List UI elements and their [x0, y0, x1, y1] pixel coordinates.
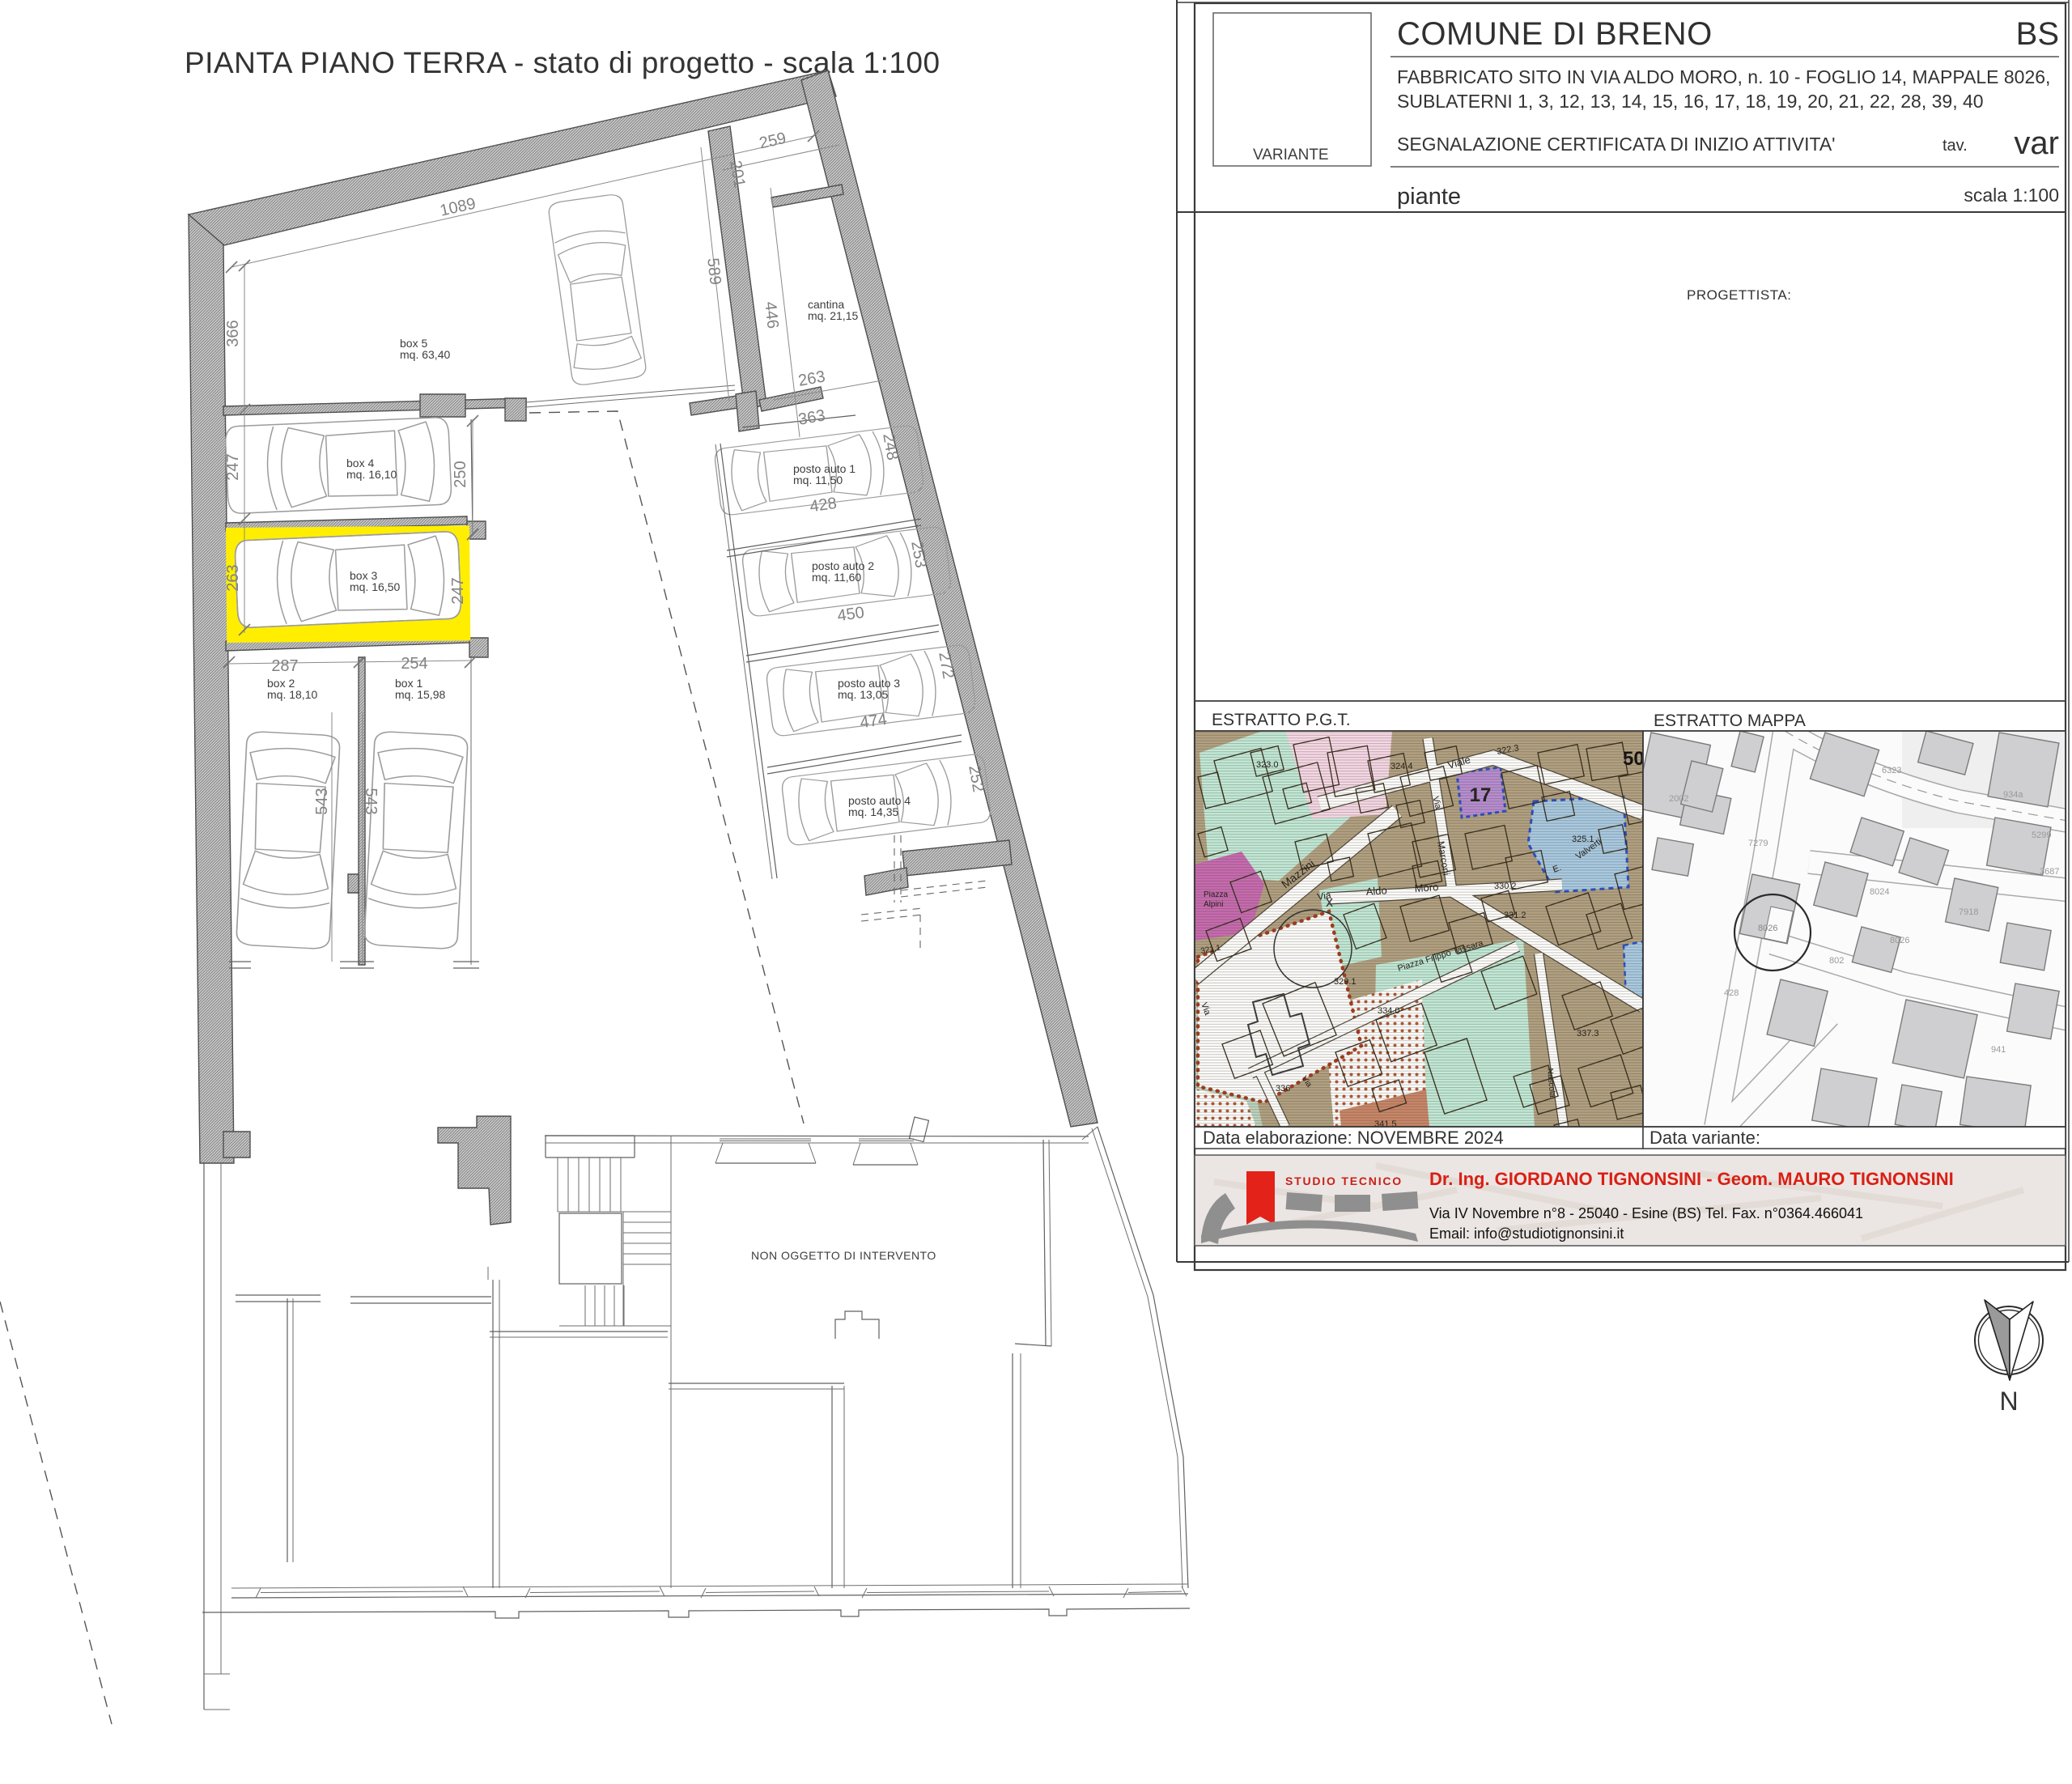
svg-text:mq. 11,50: mq. 11,50 — [793, 474, 843, 486]
svg-text:247: 247 — [449, 577, 467, 604]
svg-text:8026: 8026 — [1890, 936, 1909, 945]
svg-text:SUBLATERNI 1, 3, 12, 13, 14, 1: SUBLATERNI 1, 3, 12, 13, 14, 15, 16, 17,… — [1397, 91, 1984, 112]
svg-text:247: 247 — [224, 453, 242, 480]
svg-text:mq. 14,35: mq. 14,35 — [848, 805, 898, 818]
svg-text:589: 589 — [703, 257, 724, 286]
svg-text:802: 802 — [1829, 956, 1844, 966]
svg-text:Email: info@studiotignonsini.i: Email: info@studiotignonsini.it — [1429, 1225, 1624, 1242]
svg-text:366: 366 — [224, 320, 242, 346]
svg-text:474: 474 — [859, 711, 888, 732]
svg-text:2002: 2002 — [1669, 794, 1688, 804]
svg-text:COMUNE DI BRENO: COMUNE DI BRENO — [1397, 16, 1713, 52]
svg-text:Data elaborazione: NOVEMBRE 20: Data elaborazione: NOVEMBRE 2024 — [1203, 1128, 1504, 1148]
svg-text:428: 428 — [1724, 988, 1739, 998]
svg-text:7918: 7918 — [1959, 907, 1978, 917]
svg-text:450: 450 — [836, 604, 865, 625]
svg-text:ESTRATTO P.G.T.: ESTRATTO P.G.T. — [1212, 711, 1351, 729]
svg-text:scala 1:100: scala 1:100 — [1964, 185, 2059, 206]
svg-text:NON OGGETTO DI INTERVENTO: NON OGGETTO DI INTERVENTO — [751, 1249, 936, 1262]
svg-text:Data variante:: Data variante: — [1650, 1128, 1760, 1148]
svg-text:ESTRATTO MAPPA: ESTRATTO MAPPA — [1654, 711, 1806, 730]
svg-text:VARIANTE: VARIANTE — [1253, 147, 1329, 164]
svg-text:mq. 18,10: mq. 18,10 — [267, 688, 317, 701]
svg-text:PROGETTISTA:: PROGETTISTA: — [1687, 287, 1791, 303]
svg-text:SEGNALAZIONE CERTIFICATA DI IN: SEGNALAZIONE CERTIFICATA DI INIZIO ATTIV… — [1397, 134, 1836, 155]
svg-text:N: N — [1999, 1387, 2018, 1416]
svg-text:mq. 16,10: mq. 16,10 — [346, 468, 397, 481]
svg-text:263: 263 — [224, 564, 242, 591]
svg-text:mq. 63,40: mq. 63,40 — [400, 348, 450, 361]
svg-text:250: 250 — [452, 461, 469, 487]
svg-text:mq. 21,15: mq. 21,15 — [808, 309, 858, 322]
svg-text:543: 543 — [362, 788, 380, 814]
svg-text:var: var — [2014, 125, 2059, 161]
svg-text:piante: piante — [1397, 184, 1461, 210]
svg-text:mq. 11,60: mq. 11,60 — [812, 571, 861, 584]
svg-text:BS: BS — [2016, 16, 2059, 52]
svg-text:254: 254 — [401, 655, 427, 673]
svg-text:8024: 8024 — [1870, 887, 1889, 897]
svg-text:STUDIO TECNICO: STUDIO TECNICO — [1285, 1174, 1403, 1187]
svg-text:Via IV Novembre n°8 - 25040 -: Via IV Novembre n°8 - 25040 - Esine (BS)… — [1429, 1205, 1863, 1221]
svg-text:8026: 8026 — [1758, 924, 1777, 933]
svg-text:446: 446 — [761, 301, 781, 329]
svg-text:543: 543 — [313, 788, 331, 814]
svg-text:287: 287 — [271, 657, 298, 675]
svg-text:428: 428 — [809, 495, 838, 516]
svg-text:tav.: tav. — [1942, 137, 1968, 155]
svg-text:mq. 15,98: mq. 15,98 — [395, 688, 445, 701]
svg-text:5299: 5299 — [2032, 830, 2051, 840]
svg-text:mq. 13,05: mq. 13,05 — [838, 688, 888, 701]
svg-text:7279: 7279 — [1748, 839, 1768, 848]
svg-text:934a: 934a — [2003, 790, 2023, 800]
svg-text:FABBRICATO SITO IN VIA ALDO MO: FABBRICATO SITO IN VIA ALDO MORO, n. 10 … — [1397, 66, 2050, 87]
svg-text:mq. 16,50: mq. 16,50 — [350, 580, 400, 593]
svg-text:941: 941 — [1991, 1045, 2006, 1055]
svg-text:6323: 6323 — [1882, 766, 1901, 775]
svg-text:Dr. Ing. GIORDANO TIGNONSINI -: Dr. Ing. GIORDANO TIGNONSINI - Geom. MAU… — [1429, 1169, 1954, 1189]
svg-text:3687: 3687 — [2040, 867, 2059, 877]
